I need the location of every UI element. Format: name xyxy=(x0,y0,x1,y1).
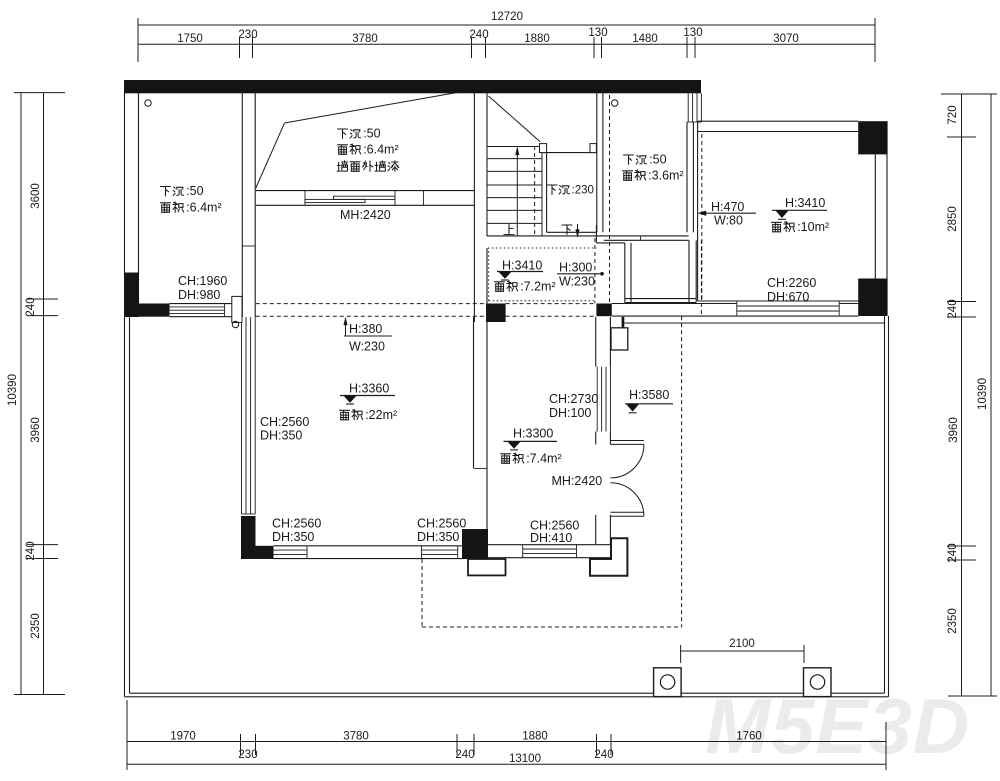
svg-text:240: 240 xyxy=(25,297,37,316)
svg-text::6.4m²: :6.4m² xyxy=(363,143,398,157)
svg-text:DH:100: DH:100 xyxy=(549,406,591,420)
svg-text:240: 240 xyxy=(947,543,959,562)
svg-text:130: 130 xyxy=(683,27,702,39)
svg-text:2350: 2350 xyxy=(30,613,42,639)
svg-text::7.4m²: :7.4m² xyxy=(526,452,561,466)
svg-text:230: 230 xyxy=(238,29,257,41)
svg-text:H:470: H:470 xyxy=(711,200,744,214)
svg-text:W:80: W:80 xyxy=(714,214,743,228)
svg-text:H:3300: H:3300 xyxy=(513,427,553,441)
svg-text:DH:350: DH:350 xyxy=(260,429,302,443)
svg-text:CH:2560: CH:2560 xyxy=(260,415,309,429)
svg-text::50: :50 xyxy=(649,153,666,167)
svg-text:12720: 12720 xyxy=(491,11,523,23)
svg-text::50: :50 xyxy=(363,127,380,141)
svg-text::6.4m²: :6.4m² xyxy=(186,201,221,215)
svg-text:240: 240 xyxy=(594,749,613,761)
svg-text:3780: 3780 xyxy=(352,33,378,45)
svg-text:1750: 1750 xyxy=(177,33,203,45)
svg-text::230: :230 xyxy=(572,185,594,197)
svg-text:DH:980: DH:980 xyxy=(178,288,220,302)
svg-text:CH:2260: CH:2260 xyxy=(767,276,816,290)
svg-text:CH:2560: CH:2560 xyxy=(417,517,466,531)
svg-text:130: 130 xyxy=(588,27,607,39)
svg-text:3070: 3070 xyxy=(773,33,799,45)
svg-text:MH:2420: MH:2420 xyxy=(552,474,603,488)
svg-text:CH:1960: CH:1960 xyxy=(178,274,227,288)
svg-text:MH:2420: MH:2420 xyxy=(340,208,391,222)
svg-text:240: 240 xyxy=(25,541,37,560)
svg-text::22m²: :22m² xyxy=(365,408,397,422)
svg-text:1970: 1970 xyxy=(170,731,196,743)
svg-text:2850: 2850 xyxy=(947,206,959,232)
svg-text:720: 720 xyxy=(947,105,959,124)
svg-text:240: 240 xyxy=(947,299,959,318)
svg-text:W:230: W:230 xyxy=(349,340,385,354)
svg-text:10390: 10390 xyxy=(7,374,19,406)
svg-text:1880: 1880 xyxy=(522,731,548,743)
svg-text:H:3410: H:3410 xyxy=(502,259,542,273)
svg-text:2100: 2100 xyxy=(729,638,755,650)
svg-text:CH:2560: CH:2560 xyxy=(272,517,321,531)
svg-text:3600: 3600 xyxy=(30,183,42,209)
svg-text:DH:410: DH:410 xyxy=(530,531,572,545)
svg-text:240: 240 xyxy=(455,749,474,761)
svg-text:3960: 3960 xyxy=(30,417,42,443)
svg-text::10m²: :10m² xyxy=(797,220,829,234)
svg-text:H:300: H:300 xyxy=(559,261,592,275)
svg-text:CH:2730: CH:2730 xyxy=(549,392,598,406)
svg-text:230: 230 xyxy=(238,749,257,761)
svg-text::7.2m²: :7.2m² xyxy=(520,280,555,294)
svg-text:1760: 1760 xyxy=(736,731,762,743)
svg-text:13100: 13100 xyxy=(509,753,541,765)
svg-text:1880: 1880 xyxy=(524,33,550,45)
svg-text:M5E3D: M5E3D xyxy=(705,682,970,770)
svg-text:DH:670: DH:670 xyxy=(767,290,809,304)
svg-text:3960: 3960 xyxy=(948,417,960,443)
svg-text:H:3360: H:3360 xyxy=(349,382,389,396)
svg-text:2350: 2350 xyxy=(947,608,959,634)
svg-text:3780: 3780 xyxy=(343,731,369,743)
svg-text:DH:350: DH:350 xyxy=(417,530,459,544)
svg-text:10390: 10390 xyxy=(977,378,989,410)
svg-text::3.6m²: :3.6m² xyxy=(648,169,683,183)
svg-text:W:230: W:230 xyxy=(559,275,595,289)
svg-text::50: :50 xyxy=(186,184,203,198)
svg-text:H:3410: H:3410 xyxy=(785,196,825,210)
svg-text:H:3580: H:3580 xyxy=(629,388,669,402)
svg-text:DH:350: DH:350 xyxy=(272,530,314,544)
svg-text:1480: 1480 xyxy=(632,33,658,45)
svg-text:H:380: H:380 xyxy=(349,322,382,336)
svg-text:240: 240 xyxy=(469,29,488,41)
